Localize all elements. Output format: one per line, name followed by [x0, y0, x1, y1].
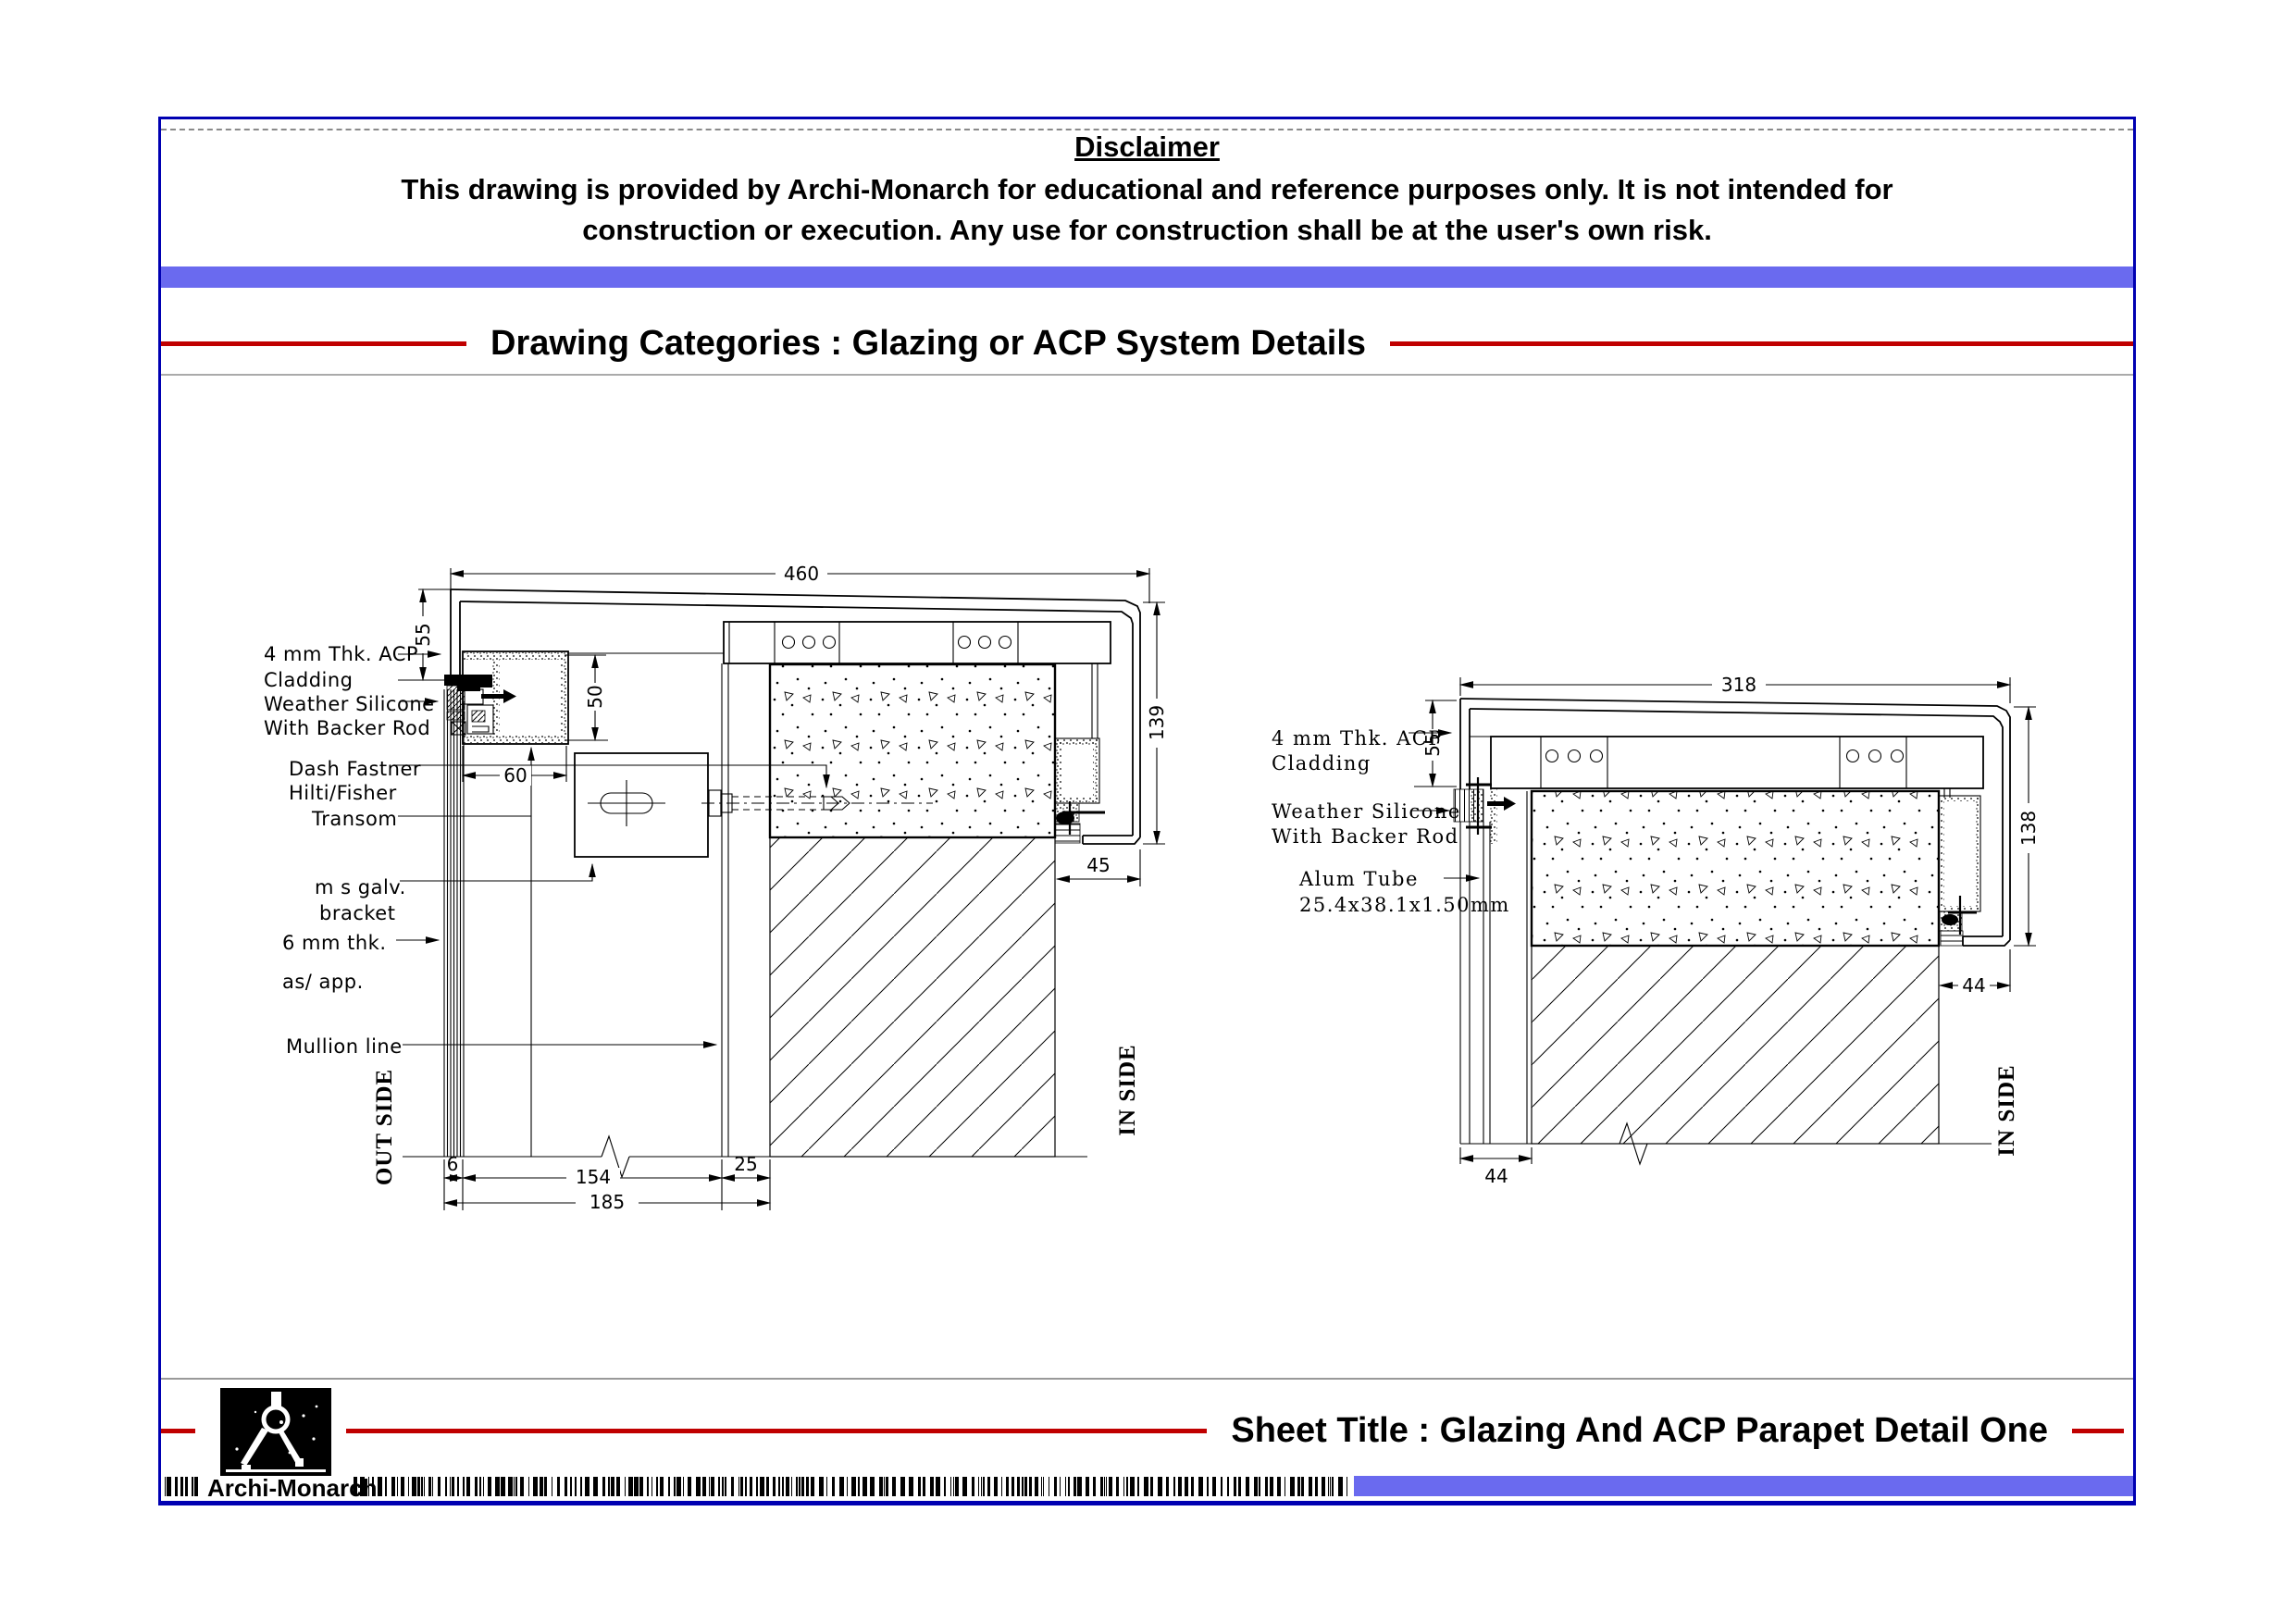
label-acp-line1: 4 mm Thk. ACP — [264, 643, 418, 665]
dim-44-right: 44 — [1962, 974, 1985, 997]
footer-divider — [161, 1378, 2133, 1380]
left-mullion-lines — [722, 663, 728, 1157]
left-brick-wall — [770, 837, 1055, 1157]
right-return-assembly — [1939, 788, 2010, 946]
label-thk-line1: 6 mm thk. — [282, 932, 387, 954]
label-acp-right-line1: 4 mm Thk. ACP — [1272, 727, 1443, 750]
right-vent-band — [1470, 737, 1983, 788]
left-detail: 460 55 50 60 139 45 6 154 — [264, 563, 1168, 1213]
dim-154: 154 — [576, 1166, 611, 1188]
footer-blue-bar — [1354, 1476, 2133, 1496]
dim-25: 25 — [734, 1153, 757, 1175]
sheet-title-row: Sheet Title : Glazing And ACP Parapet De… — [161, 1406, 2133, 1455]
label-fastener-line1: Dash Fastner — [289, 758, 421, 780]
right-brick-wall — [1532, 946, 1939, 1144]
label-in-side-left: IN SIDE — [1115, 1044, 1140, 1135]
left-vent-band — [724, 622, 1111, 663]
left-galv-bracket — [575, 753, 708, 857]
dim-185: 185 — [590, 1191, 625, 1213]
label-transom: Transom — [311, 808, 397, 830]
label-mullion: Mullion line — [286, 1035, 403, 1058]
left-return-assembly — [1055, 663, 1140, 844]
barcode-left — [165, 1477, 202, 1496]
title-red-dash-left — [161, 1429, 195, 1433]
barcode-main — [354, 1477, 1351, 1496]
label-acp-right-line2: Cladding — [1272, 752, 1371, 774]
label-bracket-line2: bracket — [319, 902, 395, 924]
label-acp-line2: Cladding — [264, 669, 354, 691]
dim-139: 139 — [1146, 705, 1168, 740]
label-silicone-right-line2: With Backer Rod — [1272, 825, 1459, 848]
label-tube-line1: Alum Tube — [1298, 868, 1419, 890]
label-thk-line2: as/ app. — [282, 971, 364, 993]
dim-60: 60 — [503, 764, 527, 787]
dim-138: 138 — [2017, 811, 2040, 846]
dim-318: 318 — [1721, 674, 1756, 696]
title-red-line — [346, 1429, 1207, 1433]
label-silicone-line2: With Backer Rod — [264, 717, 430, 739]
dim-45: 45 — [1086, 854, 1110, 876]
dim-50: 50 — [584, 685, 606, 708]
dim-460: 460 — [784, 563, 819, 585]
label-tube-line2: 25.4x38.1x1.50mm — [1299, 894, 1510, 916]
label-bracket-line1: m s galv. — [315, 876, 406, 898]
archi-monarch-logo — [220, 1388, 331, 1476]
right-acp-cladding-lines — [1460, 822, 1470, 1144]
dim-44-bottom: 44 — [1484, 1165, 1508, 1187]
cad-sheet-page: Disclaimer This drawing is provided by A… — [0, 0, 2296, 1623]
left-acp-cladding-lines — [444, 689, 464, 1157]
right-silicone-assembly — [1454, 777, 1516, 835]
right-concrete-slab — [1532, 791, 1939, 946]
brand-name: Archi-Monarch — [207, 1474, 377, 1503]
label-silicone-right-line1: Weather Silicone — [1272, 800, 1461, 823]
left-concrete-slab — [770, 664, 1055, 837]
right-detail: 318 55 138 44 44 4 mm Thk. ACP Cladding — [1272, 674, 2040, 1187]
label-silicone-line1: Weather Silicone — [264, 693, 435, 715]
compass-icon — [220, 1388, 331, 1476]
label-out-side: OUT SIDE — [372, 1069, 397, 1185]
sheet-title: Sheet Title : Glazing And ACP Parapet De… — [1231, 1411, 2048, 1451]
label-fastener-line2: Hilti/Fisher — [289, 782, 397, 804]
right-alum-tube-lines — [1483, 822, 1490, 1144]
title-red-dash-right — [2072, 1429, 2124, 1433]
dim-6: 6 — [447, 1153, 459, 1175]
label-in-side-right: IN SIDE — [1994, 1064, 2019, 1156]
